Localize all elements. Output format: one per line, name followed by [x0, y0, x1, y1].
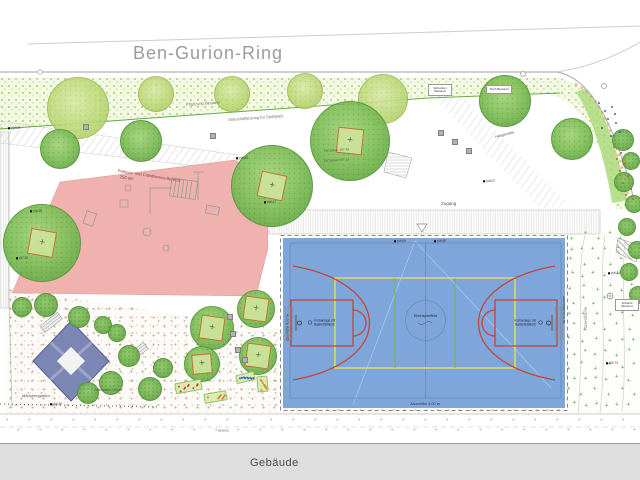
walkway-grass-mark: + — [633, 428, 635, 432]
walkway-grass-mark: + — [259, 428, 261, 432]
court-center-label: Kleinspielfeld — [414, 313, 438, 318]
lawn-grass-mark: + — [592, 302, 595, 307]
spot-elevation: 158,36 — [30, 209, 42, 214]
parkour-label-2: 250 qm — [119, 175, 134, 182]
seat-cube — [452, 139, 458, 145]
lawn-grass-mark: + — [632, 362, 635, 367]
lawn-grass-mark: + — [571, 271, 574, 276]
walkway-grass-mark: + — [171, 428, 173, 432]
tree — [120, 120, 162, 162]
lawn-grass-mark: + — [632, 338, 635, 343]
fence-label-right: Zaunhöhe 4,00 m — [562, 296, 565, 323]
planting-label: Pflanzung Bestand — [186, 101, 220, 108]
walkway-grass-mark: + — [182, 418, 184, 422]
flower-dot — [630, 188, 632, 190]
lawn-grass-mark: + — [609, 339, 612, 344]
bush — [612, 129, 634, 151]
lawn-grass-mark: + — [585, 404, 588, 409]
seat-cube — [438, 130, 444, 136]
seat-cube — [83, 124, 89, 130]
basketball-court: Kleinspielfeld Korbanlage mit Basketball… — [283, 238, 565, 408]
tree-pit — [257, 171, 288, 202]
walkway-grass-mark: + — [292, 418, 294, 422]
lawn-grass-mark: + — [594, 367, 597, 372]
flower-dot — [632, 198, 634, 200]
fence-label-left: Zaunhöhe 4,00 m — [286, 314, 290, 341]
walkway-grass-mark: + — [28, 418, 30, 422]
lawn-grass-mark: + — [629, 297, 632, 302]
tree-pit — [27, 228, 57, 258]
lawn-grass-mark: + — [583, 263, 586, 268]
tree-pit — [336, 127, 365, 156]
flower-dot — [624, 163, 626, 165]
tree — [479, 75, 531, 127]
lawn-grass-mark: + — [621, 338, 624, 343]
lawn-grass-mark: + — [595, 402, 598, 407]
lawn-grass-mark: + — [570, 237, 573, 242]
flower-dot — [607, 118, 609, 120]
flower-dot — [627, 175, 629, 177]
wall-label-1: OK Mauer 157,45 — [324, 148, 349, 153]
lawn-grass-mark: + — [603, 296, 606, 301]
walkway-grass-mark: + — [204, 418, 206, 422]
bush — [622, 152, 640, 170]
lawn-grass-mark: + — [591, 247, 594, 252]
lawn-grass-mark: + — [615, 403, 618, 408]
walkway-grass-mark: + — [600, 418, 602, 422]
path-band-west — [0, 121, 238, 171]
walkway-grass-mark: + — [413, 428, 415, 432]
lawn-area: ++++++++++++++++++++++++++++++++++++++++… — [566, 230, 640, 416]
ramp-strip — [0, 132, 9, 308]
lawn-grass-mark: + — [573, 353, 576, 358]
parkour-area — [12, 160, 268, 296]
flower-dot — [619, 131, 621, 133]
walkway-grass-mark: + — [380, 418, 382, 422]
walkway-grass-mark: + — [17, 428, 19, 432]
lawn-grass-mark: + — [608, 362, 611, 367]
lawn-grass-mark: + — [581, 340, 584, 345]
walkway-grass-mark: + — [490, 418, 492, 422]
lawn-grass-mark: + — [633, 393, 636, 398]
walkway-grass-mark: + — [611, 428, 613, 432]
spot-elevation: 158,06 — [8, 126, 20, 131]
lawn-grass-mark: + — [597, 257, 600, 262]
lawn-grass-mark: + — [629, 232, 632, 237]
seat-cube — [466, 148, 472, 154]
tree — [551, 118, 593, 160]
lawn-grass-mark: + — [616, 301, 619, 306]
street-line-far — [28, 26, 640, 44]
walkway-grass-mark: + — [446, 418, 448, 422]
street-curb — [0, 72, 636, 208]
lawn-grass-mark: + — [603, 328, 606, 333]
walkway-grass-mark: + — [94, 418, 96, 422]
lawn-grass-mark: + — [627, 379, 630, 384]
lawn-grass-mark: + — [568, 312, 571, 317]
lawn-grass-mark: + — [573, 322, 576, 327]
lawn-grass-mark: + — [580, 393, 583, 398]
lawn-grass-mark: + — [627, 403, 630, 408]
tree — [40, 129, 80, 169]
flower-dot — [598, 102, 600, 104]
lawn-grass-mark: + — [620, 289, 623, 294]
spot-elevation: 156,27 — [264, 200, 276, 205]
lawn-grass-mark: + — [609, 263, 612, 268]
tree — [358, 74, 408, 124]
lawn-grass-mark: + — [615, 322, 618, 327]
bush — [614, 172, 634, 192]
walkway-grass-mark: + — [545, 428, 547, 432]
walkway-grass-mark: + — [347, 428, 349, 432]
lawn-grass-mark: + — [594, 353, 597, 358]
lawn-grass-mark: + — [568, 287, 571, 292]
walkway-grass-mark: + — [160, 418, 162, 422]
walkway-grass-mark: + — [589, 428, 591, 432]
walkway-grass-mark: + — [193, 428, 195, 432]
lawn-grass-mark: + — [580, 247, 583, 252]
walkway-grass-mark: + — [512, 418, 514, 422]
walkway-grass-mark: + — [237, 428, 239, 432]
tree — [3, 204, 81, 282]
tree — [287, 73, 323, 109]
walkway-grass-mark: + — [336, 418, 338, 422]
lawn-grass-mark: + — [567, 367, 570, 372]
lawn-grass-mark: + — [597, 237, 600, 242]
walkway-grass-mark: + — [534, 418, 536, 422]
tree — [231, 145, 313, 227]
tree — [47, 77, 109, 139]
walkway-grass-mark: + — [501, 428, 503, 432]
lawn-grass-mark: + — [583, 328, 586, 333]
path-band-access — [432, 96, 570, 208]
flower-dot — [622, 182, 624, 184]
table-callout-box: Tisch Bestand — [486, 85, 512, 94]
shrub-label: Strauchpflanzung für Spielplatz — [228, 114, 284, 122]
walkway-grass-mark: + — [556, 418, 558, 422]
walkway-grass-mark: + — [314, 418, 316, 422]
bush — [625, 195, 640, 213]
flower-dot — [615, 122, 617, 124]
lawn-grass-mark: + — [603, 274, 606, 279]
lawn-grass-mark: + — [630, 273, 633, 278]
flower-dot — [625, 194, 627, 196]
walkway-grass-mark: + — [358, 418, 360, 422]
lawn-grass-mark: + — [617, 246, 620, 251]
lawn-grass-mark: + — [595, 337, 598, 342]
walkway-grass-mark: + — [149, 428, 151, 432]
parkour-equipment — [83, 172, 220, 251]
walkway-grass-mark: + — [39, 428, 41, 432]
flower-dot — [604, 110, 606, 112]
shrub-fence-line — [0, 93, 560, 129]
flower-dot — [614, 113, 616, 115]
seat-steps-wall — [384, 152, 412, 178]
walkway-grass-mark: + — [226, 418, 228, 422]
seat-cube — [227, 314, 233, 320]
walkway: ++++++++++++++++++++++++++++++++++++++++… — [0, 414, 640, 443]
walkway-grass-mark: + — [369, 428, 371, 432]
lawn-grass-mark: + — [620, 257, 623, 262]
spot-elevation: 158,07 — [483, 179, 495, 184]
gate-marker — [417, 224, 427, 232]
lawn-grass-mark: + — [630, 263, 633, 268]
walkway-grass-mark: + — [391, 428, 393, 432]
flower-dot — [601, 127, 603, 129]
walkway-grass-mark: + — [270, 418, 272, 422]
fence-label-bottom: Zaunhöhe 4,00 m — [410, 402, 440, 406]
flower-dot — [611, 106, 613, 108]
lawn-grass-mark: + — [593, 387, 596, 392]
walkway-grass-mark: + — [479, 428, 481, 432]
tree-pit — [242, 295, 269, 322]
lawn-grass-mark: + — [584, 349, 587, 354]
tree — [138, 76, 174, 112]
tree — [237, 290, 275, 328]
lawn-grass-mark: + — [609, 313, 612, 318]
walkway-grass-mark: + — [567, 428, 569, 432]
lawn-grass-mark: + — [604, 349, 607, 354]
building-footprint — [0, 443, 640, 480]
lawn-grass-mark: + — [609, 284, 612, 289]
lawn-grass-mark: + — [591, 271, 594, 276]
walkway-grass-mark: + — [325, 428, 327, 432]
wall-label-2: OK Mauer 157,11 — [324, 158, 349, 163]
flower-dot — [616, 158, 618, 160]
lawn-grass-mark: + — [619, 237, 622, 242]
tree — [214, 76, 250, 112]
lawn-grass-mark: + — [584, 231, 587, 236]
lawn-grass-mark: + — [605, 404, 608, 409]
lawn-grass-mark: + — [594, 376, 597, 381]
lawn-grass-mark: + — [628, 348, 631, 353]
parkour-label-1: Parkour- und Calisthenics-Bereich — [117, 169, 180, 183]
lawn-grass-mark: + — [573, 377, 576, 382]
street-name: Ben-Gurion-Ring — [133, 44, 283, 64]
gravel-strip — [300, 407, 563, 414]
lawn-grass-mark: + — [584, 377, 587, 382]
walkway-grass-mark: + — [50, 418, 52, 422]
lawn-grass-mark: + — [572, 302, 575, 307]
walkway-grass-mark: + — [468, 418, 470, 422]
hammock-label: Hängematte — [495, 131, 515, 140]
walkway-grass-mark: + — [83, 428, 85, 432]
lawn-grass-mark: + — [582, 284, 585, 289]
lawn-grass-mark: + — [621, 366, 624, 371]
flower-dot — [619, 170, 621, 172]
play-area-gravel — [5, 286, 303, 413]
lawn-grass-mark: + — [631, 248, 634, 253]
flower-dot — [613, 146, 615, 148]
walkway-grass-mark: + — [248, 418, 250, 422]
lamp-symbols — [38, 70, 607, 89]
walkway-grass-mark: + — [105, 428, 107, 432]
lawn-grass-mark: + — [581, 275, 584, 280]
lawn-grass-mark: + — [567, 336, 570, 341]
seat-cube — [210, 133, 216, 139]
lawn-grass-mark: + — [567, 387, 570, 392]
lawn-grass-mark: + — [596, 288, 599, 293]
walkway-grass-mark: + — [61, 428, 63, 432]
walkway-grass-mark: + — [523, 428, 525, 432]
lawn-grass-mark: + — [628, 328, 631, 333]
walkway-grass-mark: + — [457, 428, 459, 432]
hoop-right-label-2: Basketballkorb — [515, 323, 536, 327]
lawn-grass-mark: + — [615, 354, 618, 359]
lawn-grass-mark: + — [570, 248, 573, 253]
walkway-grass-mark: + — [72, 418, 74, 422]
walkway-grass-mark: + — [303, 428, 305, 432]
lawn-grass-mark: + — [582, 296, 585, 301]
walkway-grass-mark: + — [6, 418, 8, 422]
lawn-grass-mark: + — [609, 231, 612, 236]
steps-callout-box: Sitzstufen Bestand — [428, 84, 452, 96]
lawn-grass-mark: + — [573, 401, 576, 406]
walkway-grass-mark: + — [402, 418, 404, 422]
walkway-grass-mark: + — [116, 418, 118, 422]
access-label: Zugang — [441, 202, 456, 207]
site-plan: ++++++++++++++++++++++++++++++++++++++++… — [0, 0, 640, 480]
spot-elevation: 157,32 — [16, 256, 28, 261]
lawn-grass-mark: + — [607, 393, 610, 398]
street-curb-branch — [556, 42, 640, 72]
walkway-grass-mark: + — [127, 428, 129, 432]
lawn-grass-mark: + — [616, 272, 619, 277]
walkway-grass-mark: + — [215, 428, 217, 432]
path-band-court — [268, 210, 600, 234]
walkway-grass-mark: + — [435, 428, 437, 432]
flower-swath — [576, 88, 627, 203]
lawn-grass-mark: + — [631, 314, 634, 319]
lawn-grass-mark: + — [630, 283, 633, 288]
hoop-left-label-2: Basketballkorb — [314, 323, 335, 327]
walkway-grass-mark: + — [138, 418, 140, 422]
lawn-grass-mark: + — [569, 257, 572, 262]
lawn-grass-mark: + — [582, 312, 585, 317]
walkway-grass-mark: + — [578, 418, 580, 422]
lawn-grass-mark: + — [621, 387, 624, 392]
walkway-grass-mark: + — [424, 418, 426, 422]
lawn-grass-mark: + — [621, 311, 624, 316]
lawn-grass-mark: + — [603, 247, 606, 252]
lawn-grass-mark: + — [596, 312, 599, 317]
walkway-grass-mark: + — [281, 428, 283, 432]
spot-elevation: 156,43 — [236, 156, 248, 161]
lawn-grass-mark: + — [615, 375, 618, 380]
lawn-grass-mark: + — [593, 322, 596, 327]
lawn-grass-mark: + — [604, 378, 607, 383]
curb-tick-marks — [575, 84, 630, 206]
planting-strip — [0, 78, 630, 210]
lawn-grass-mark: + — [580, 361, 583, 366]
flower-dot — [620, 152, 622, 154]
walkway-grass-mark: + — [622, 418, 624, 422]
flower-dot — [610, 135, 612, 137]
tree — [310, 101, 390, 181]
